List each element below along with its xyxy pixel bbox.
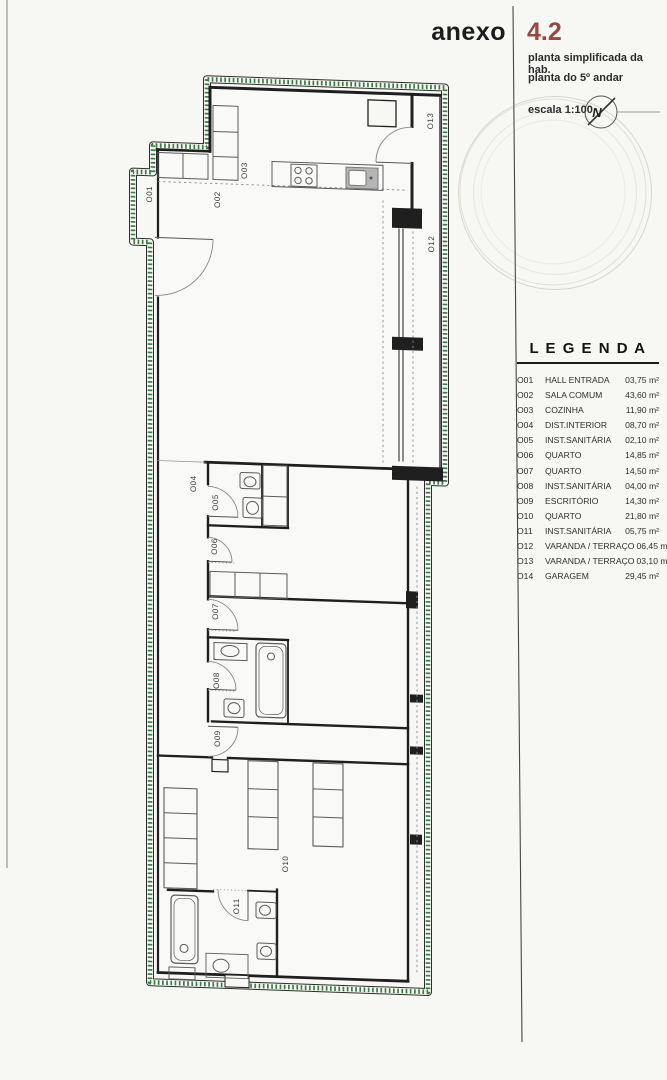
legend: L E G E N D A O01HALL ENTRADA03,75 m² O0… [517,340,659,584]
legend-row: O09ESCRITÓRIO14,30 m² [517,494,659,509]
legend-name: QUARTO [545,509,623,524]
legend-code: O08 [517,479,543,494]
legend-name: QUARTO [545,448,623,463]
legend-row: O02SALA COMUM43,60 m² [517,388,659,403]
stamp-circle [458,96,652,290]
legend-area: 14,30 m² [625,494,659,509]
room-label-o12: O12 [427,236,436,253]
legend-area: 03,10 m² [636,554,667,569]
legend-name: QUARTO [545,464,623,479]
legend-row: O06QUARTO14,85 m² [517,448,659,463]
legend-area: 21,80 m² [625,509,659,524]
legend-area: 11,90 m² [626,403,659,418]
legend-name: VARANDA / TERRAÇO [545,554,634,569]
legend-name: GARAGEM [545,569,623,584]
legend-row: O10QUARTO21,80 m² [517,509,659,524]
legend-title: L E G E N D A [517,340,659,364]
sheet-number: 4.2 [527,18,562,47]
legend-code: O09 [517,494,543,509]
legend-area: 05,75 m² [625,524,659,539]
sheet-subtitle-2: planta do 5º andar [528,72,623,84]
legend-area: 02,10 m² [625,433,659,448]
legend-code: O11 [517,524,543,539]
legend-row: O13VARANDA / TERRAÇO03,10 m² [517,554,659,569]
legend-code: O03 [517,403,543,418]
legend-name: VARANDA / TERRAÇO [545,539,634,554]
legend-code: O04 [517,418,543,433]
legend-name: SALA COMUM [545,388,623,403]
room-label-o01: O01 [145,186,154,203]
room-label-o07: O07 [211,603,220,620]
room-label-o08: O08 [212,672,221,689]
legend-code: O02 [517,388,543,403]
scanned-sheet: N [0,0,667,1080]
legend-row: O11INST.SANITÁRIA05,75 m² [517,524,659,539]
legend-area: 08,70 m² [625,418,659,433]
legend-name: INST.SANITÁRIA [545,524,623,539]
room-label-o04: O04 [189,475,198,492]
room-label-o05: O05 [211,494,220,511]
legend-name: HALL ENTRADA [545,373,623,388]
legend-code: O05 [517,433,543,448]
legend-name: INST.SANITÁRIA [545,433,623,448]
legend-row: O07QUARTO14,50 m² [517,464,659,479]
legend-area: 14,50 m² [625,464,659,479]
legend-code: O06 [517,448,543,463]
legend-code: O10 [517,509,543,524]
legend-code: O13 [517,554,543,569]
legend-area: 03,75 m² [625,373,659,388]
legend-row: O12VARANDA / TERRAÇO06,45 m² [517,539,659,554]
legend-row: O05INST.SANITÁRIA02,10 m² [517,433,659,448]
legend-area: 29,45 m² [625,569,659,584]
room-label-o11: O11 [232,898,241,914]
legend-code: O12 [517,539,543,554]
sheet-title-anexo: anexo [392,18,506,47]
legend-name: INST.SANITÁRIA [545,479,623,494]
room-label-o10: O10 [281,855,290,872]
legend-area: 04,00 m² [625,479,659,494]
legend-code: O01 [517,373,543,388]
legend-name: DIST.INTERIOR [545,418,623,433]
room-label-o02: O02 [213,191,222,208]
legend-code: O14 [517,569,543,584]
legend-area: 06,45 m² [636,539,667,554]
room-label-o09: O09 [213,730,222,747]
room-label-o13: O13 [426,113,435,130]
legend-name: ESCRITÓRIO [545,494,623,509]
legend-code: O07 [517,464,543,479]
legend-row: O08INST.SANITÁRIA04,00 m² [517,479,659,494]
legend-row: O14GARAGEM29,45 m² [517,569,659,584]
legend-row: O03COZINHA11,90 m² [517,403,659,418]
legend-name: COZINHA [545,403,624,418]
room-label-o06: O06 [210,538,219,555]
floor-plan: O01 O02 O03 O04 O05 O06 O07 O08 O09 O10 … [133,77,445,995]
legend-row: O01HALL ENTRADA03,75 m² [517,373,659,388]
room-label-o03: O03 [240,162,249,179]
legend-area: 43,60 m² [625,388,659,403]
legend-row: O04DIST.INTERIOR08,70 m² [517,418,659,433]
legend-area: 14,85 m² [625,448,659,463]
